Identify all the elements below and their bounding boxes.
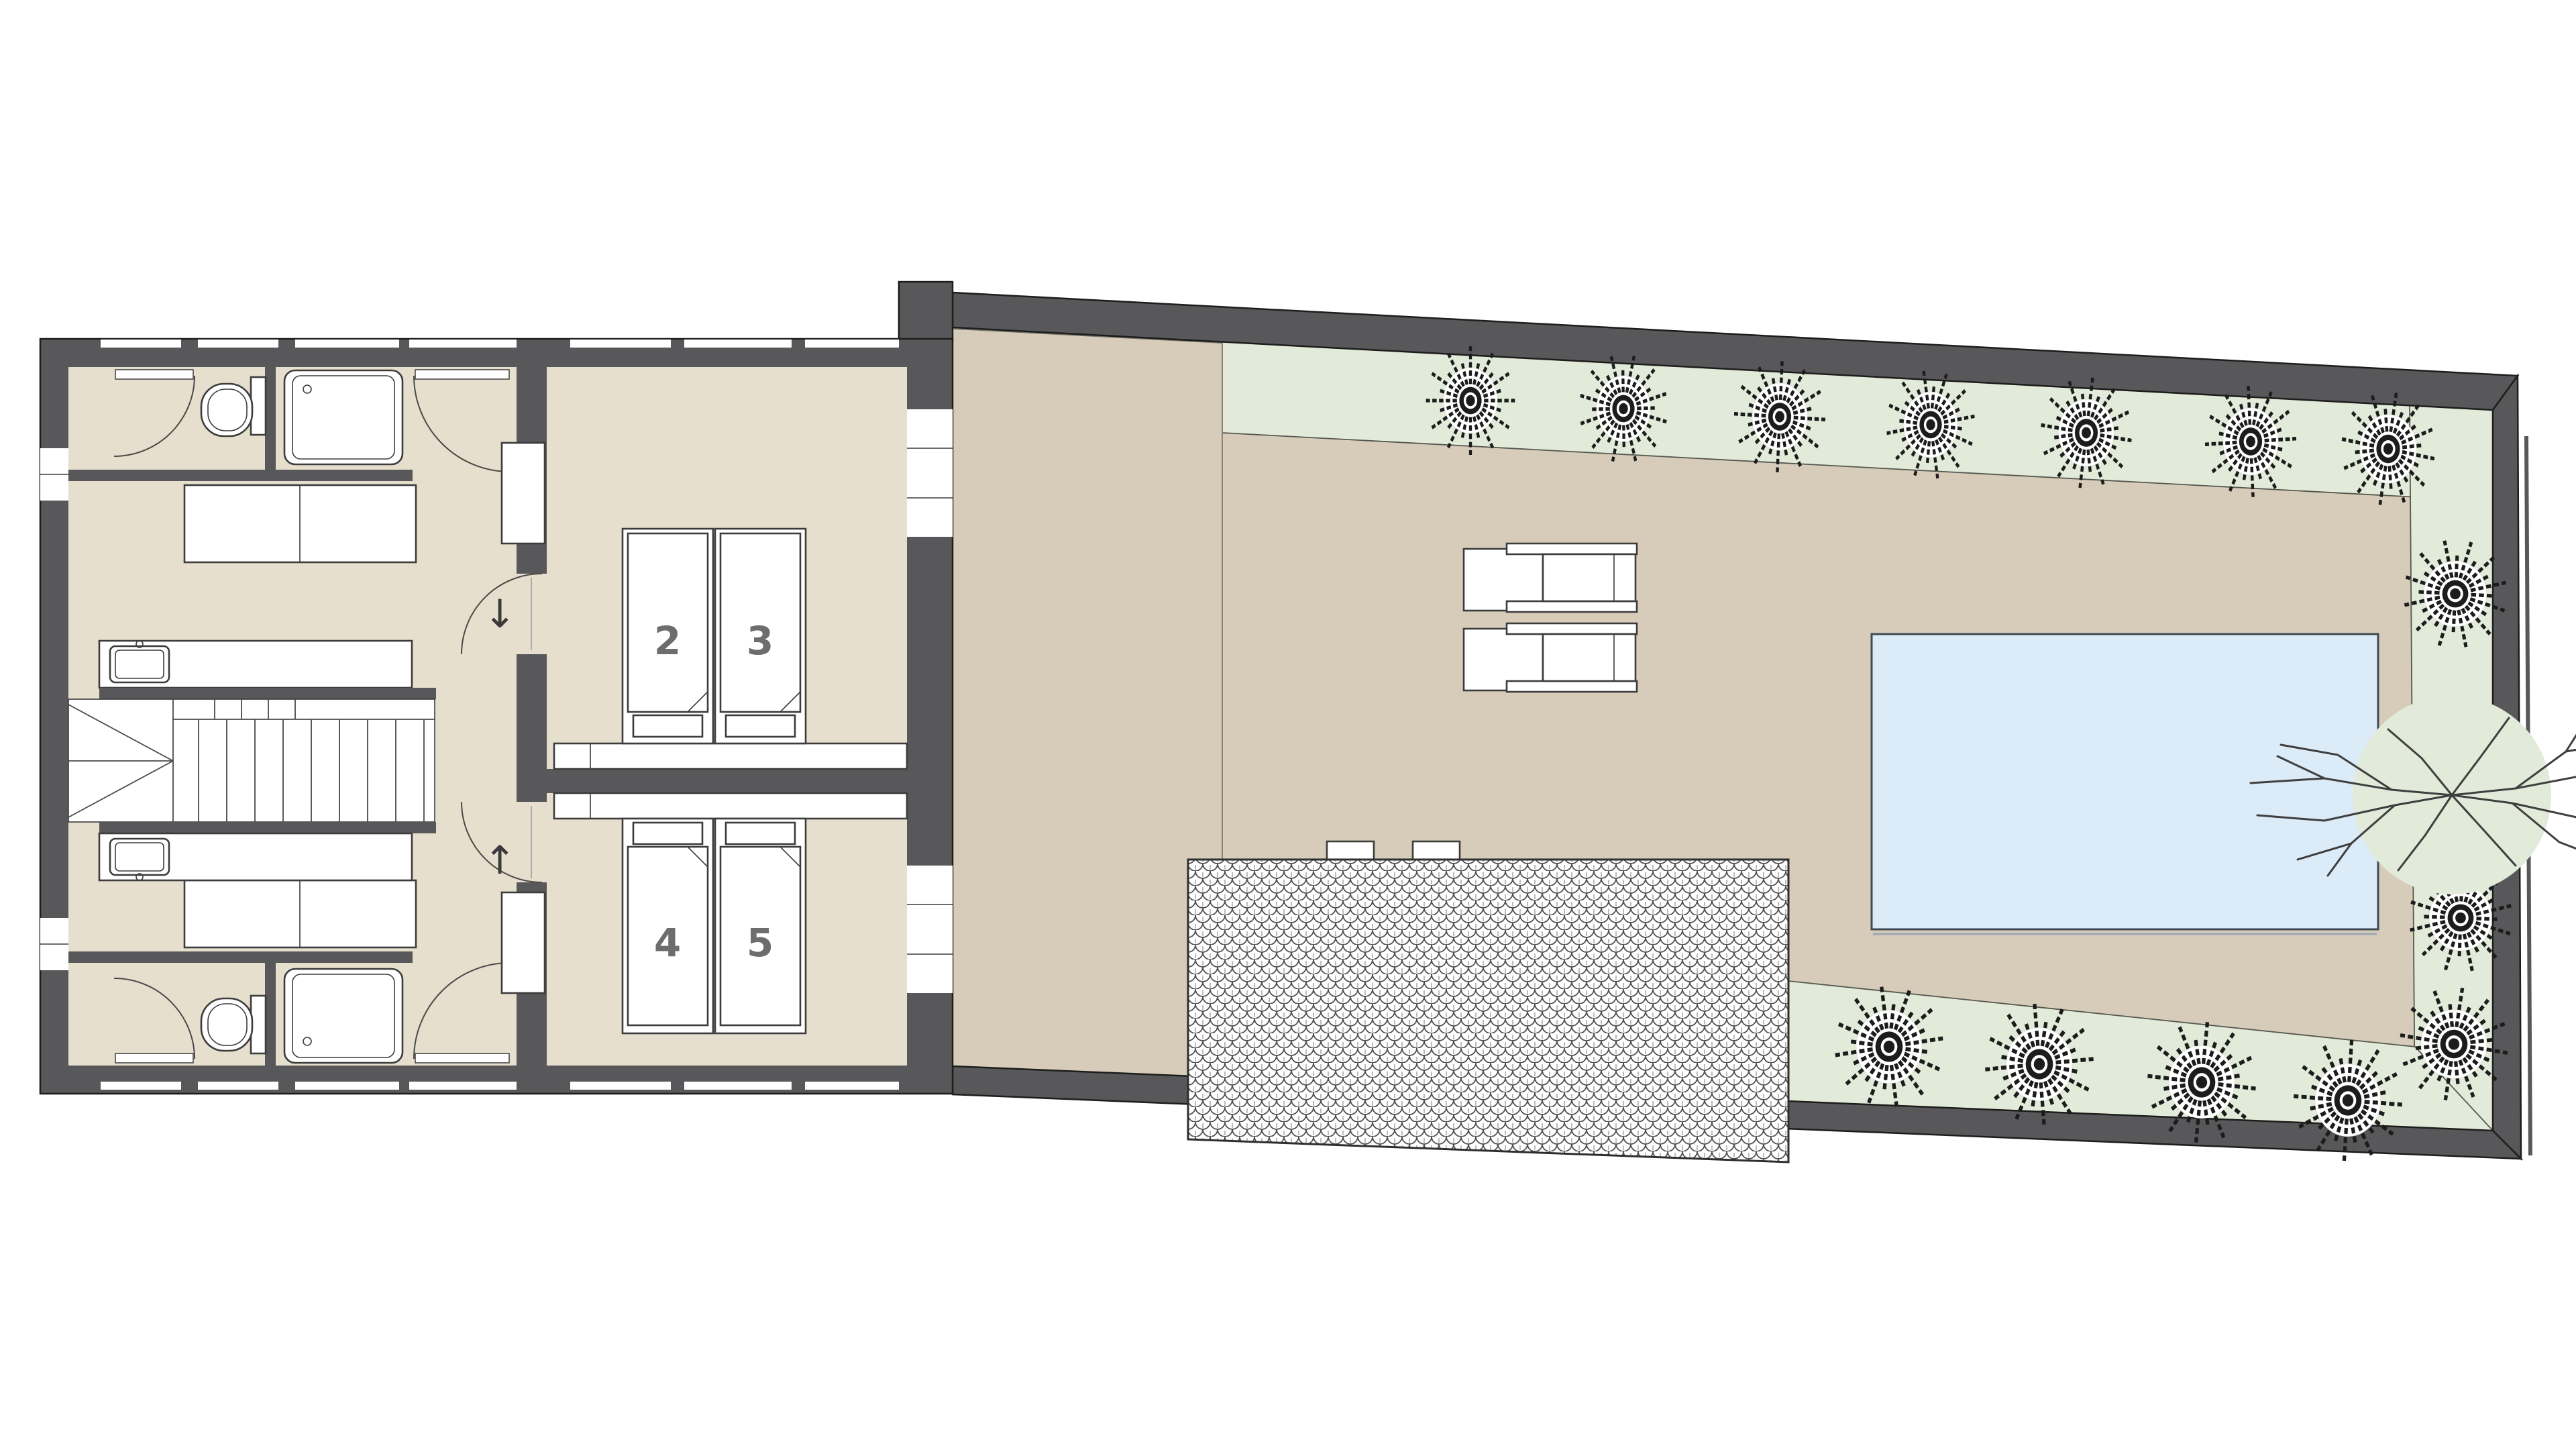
stair-wall: [99, 822, 436, 833]
bed-number: 2: [654, 618, 681, 664]
right-wall-window: [907, 409, 953, 537]
suite-partition: [265, 367, 276, 470]
bed-icon: 3: [715, 529, 806, 743]
bed-icon: 5: [715, 819, 806, 1033]
suite-wall: [68, 470, 413, 481]
sun-lounger-icon: [1464, 543, 1637, 612]
toilet-icon: [201, 996, 266, 1053]
shower-tray-icon: [284, 969, 402, 1063]
floor-plan-drawing: ↓ ↑ 2 3: [0, 0, 2576, 1450]
right-wall-window: [907, 866, 953, 993]
door-leaf: [415, 1053, 509, 1063]
top-wall-windows: [101, 340, 899, 348]
vanity-bottom: [99, 833, 412, 880]
floor-plan-canvas: ↓ ↑ 2 3: [0, 0, 2576, 1450]
bed-icon: 4: [623, 819, 713, 1033]
bottom-wall-windows: [101, 1082, 899, 1090]
wardrobe-band: [554, 793, 907, 819]
stairs-up-arrow: ↑: [484, 837, 517, 883]
stair-wall: [99, 688, 436, 699]
bed-icon: [184, 880, 416, 947]
wall-cabinet: [502, 892, 545, 993]
left-wall-window: [40, 448, 68, 501]
courtyard: [899, 282, 2576, 1182]
shower-tray-icon: [284, 370, 402, 464]
bed-icon: [184, 485, 416, 562]
suite-partition: [265, 963, 276, 1066]
bed-number: 3: [747, 618, 773, 664]
bed-icon: 2: [623, 529, 713, 743]
suite-wall: [68, 951, 413, 963]
boundary-wall-notch: [899, 282, 953, 342]
bed-number: 4: [654, 920, 681, 966]
sink-icon: [110, 839, 169, 875]
sink-icon: [110, 646, 169, 682]
chimney: [1413, 841, 1460, 860]
fish-scale-tiled-roof: [1188, 841, 1788, 1162]
door-leaf: [415, 370, 509, 379]
left-wall-window: [40, 918, 68, 970]
door-leaf: [115, 370, 193, 379]
swimming-pool: [1872, 634, 2378, 929]
sun-lounger-icon: [1464, 623, 1637, 692]
door-leaf: [115, 1053, 193, 1063]
wall-cabinet: [502, 443, 545, 543]
bed-number: 5: [747, 920, 773, 966]
building: ↓ ↑ 2 3: [40, 339, 953, 1094]
stairs-down-arrow: ↓: [484, 591, 517, 637]
vanity-top: [99, 641, 412, 688]
staircase: [68, 699, 435, 822]
chimney: [1327, 841, 1374, 860]
wardrobe-band: [554, 743, 907, 769]
